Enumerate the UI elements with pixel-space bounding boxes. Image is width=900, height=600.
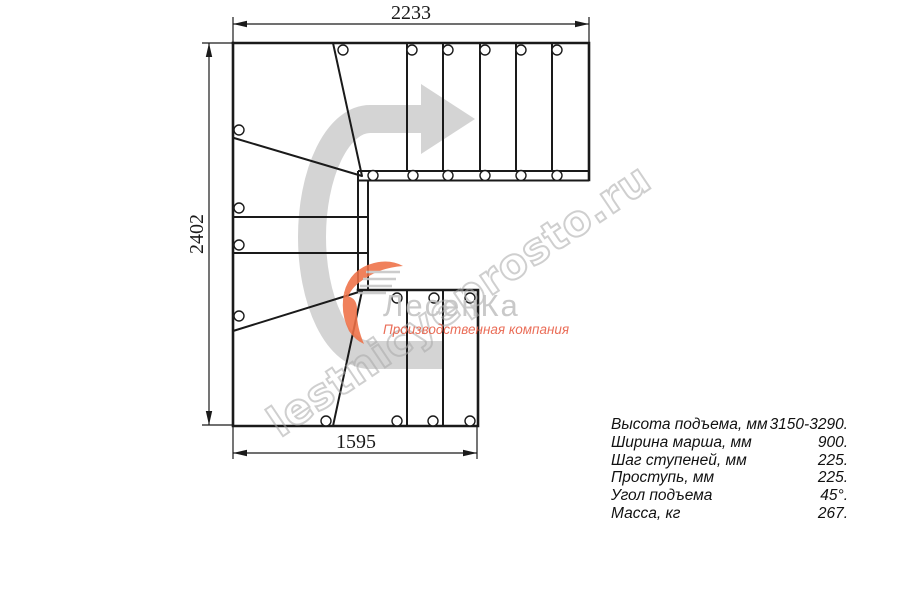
dimension-bottom-value: 1595: [336, 431, 376, 453]
spec-label: Шаг ступеней, мм: [611, 452, 747, 470]
dimension-bottom: 1595: [233, 426, 477, 459]
spec-value: 267.: [818, 505, 848, 523]
dim-arrow-down-icon: [206, 411, 212, 425]
dimension-top-value: 2233: [391, 2, 431, 24]
spec-row: Шаг ступеней, мм 225.: [611, 452, 848, 470]
dimension-left: 2402: [186, 43, 233, 425]
spec-row: Масса, кг 267.: [611, 505, 848, 523]
stair-drawing-page: 2233 2402 1595 lestnicyeprosto.ru: [0, 0, 900, 600]
spec-row: Высота подъема, мм 3150-3290.: [611, 416, 848, 434]
spec-value: 900.: [818, 434, 848, 452]
dim-arrow-up-icon: [206, 43, 212, 57]
dimension-top: 2233: [233, 2, 589, 43]
direction-arrow-icon: [312, 84, 475, 355]
spec-value: 45°.: [820, 487, 848, 505]
dimension-left-value: 2402: [186, 214, 208, 254]
spec-label: Высота подъема, мм: [611, 416, 768, 434]
dim-arrow-right-icon: [463, 450, 477, 456]
stringer-lines: [358, 171, 589, 290]
dim-arrow-left-icon: [233, 21, 247, 27]
spec-value: 225.: [818, 469, 848, 487]
specs-table: Высота подъема, мм 3150-3290. Ширина мар…: [611, 416, 848, 523]
spec-label: Масса, кг: [611, 505, 680, 523]
spec-label: Ширина марша, мм: [611, 434, 752, 452]
spec-label: Проступь, мм: [611, 469, 714, 487]
spec-row: Проступь, мм 225.: [611, 469, 848, 487]
dim-arrow-left-icon: [233, 450, 247, 456]
spec-row: Угол подъема 45°.: [611, 487, 848, 505]
spec-label: Угол подъема: [611, 487, 712, 505]
dim-arrow-right-icon: [575, 21, 589, 27]
spec-value: 3150-3290.: [770, 416, 848, 434]
spec-row: Ширина марша, мм 900.: [611, 434, 848, 452]
spec-value: 225.: [818, 452, 848, 470]
